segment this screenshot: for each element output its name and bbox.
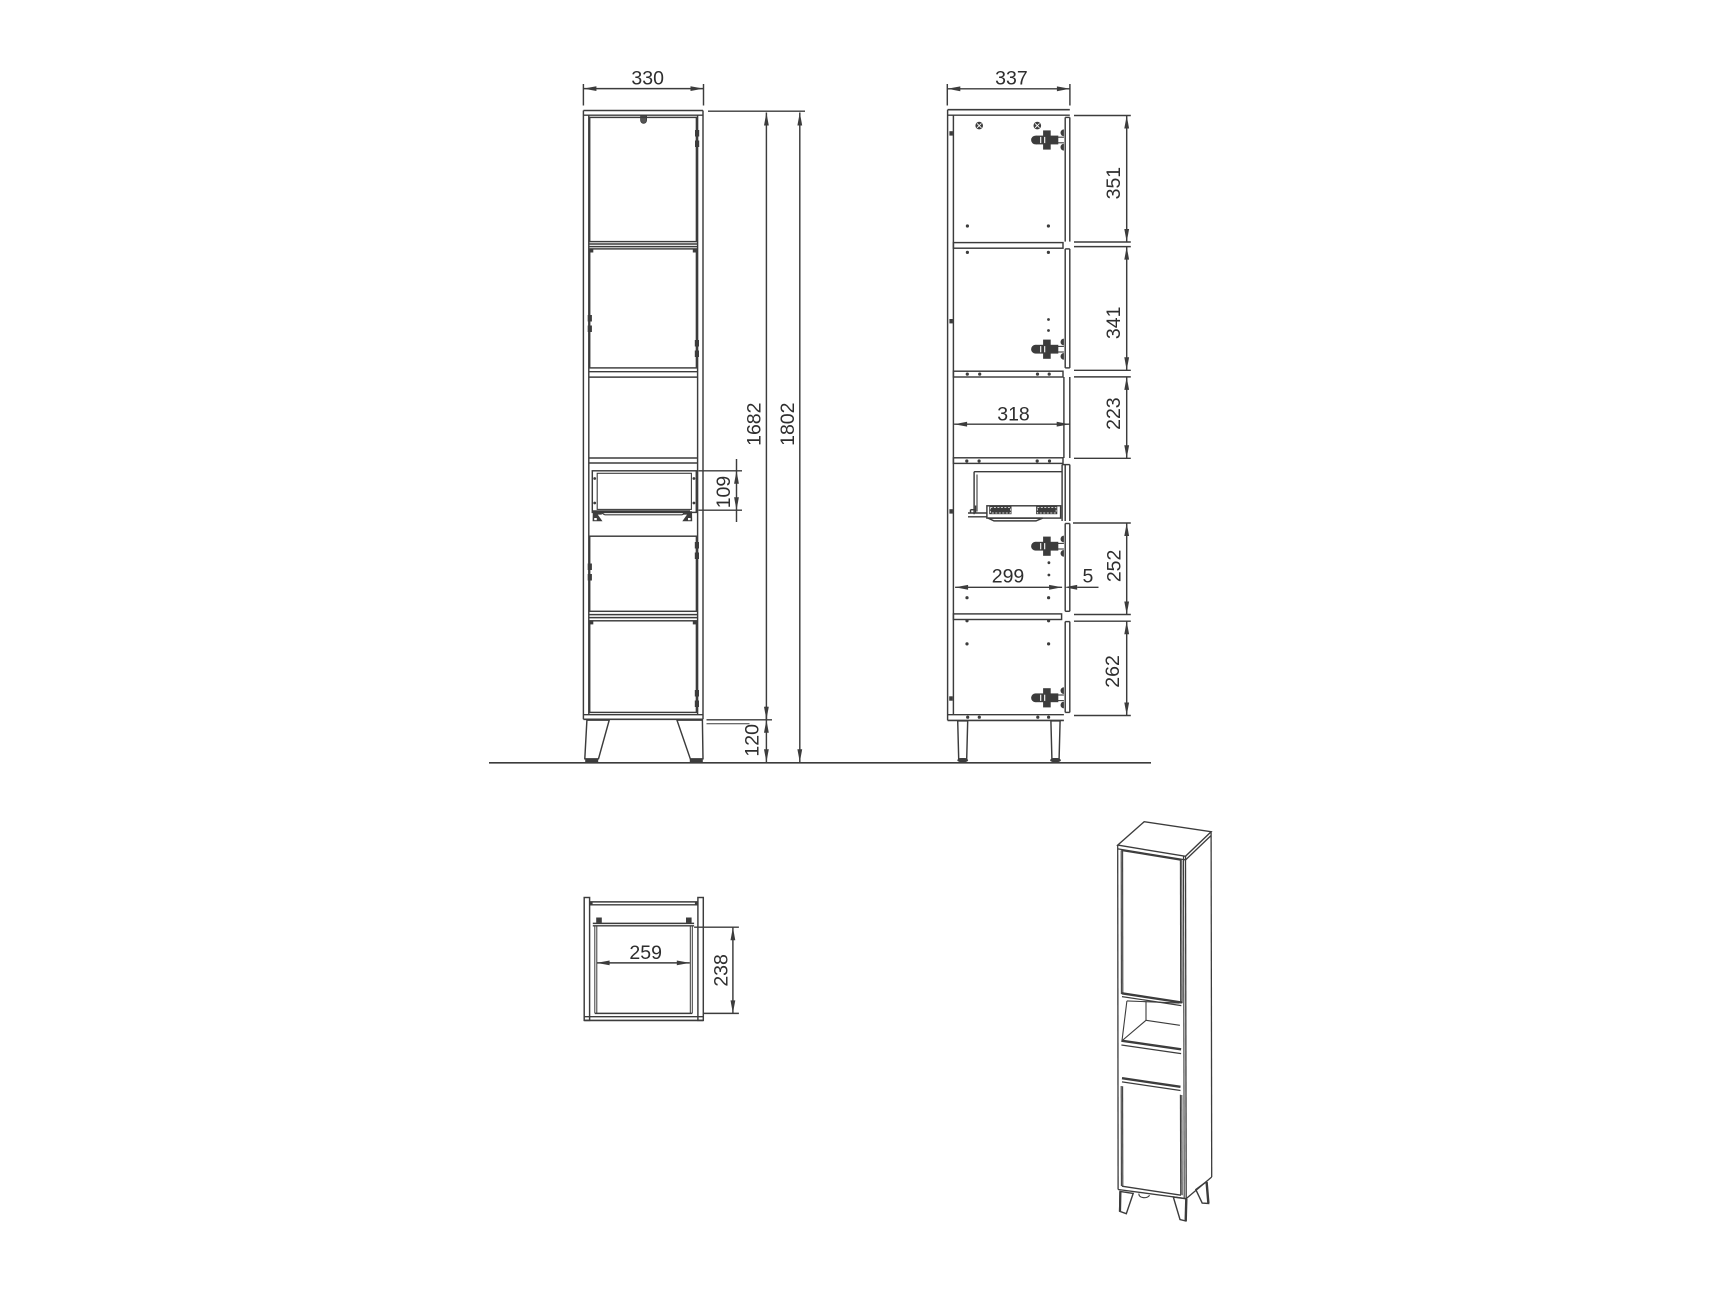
- svg-text:259: 259: [629, 942, 662, 964]
- svg-text:120: 120: [742, 724, 764, 757]
- svg-text:341: 341: [1103, 307, 1125, 340]
- svg-text:223: 223: [1103, 397, 1125, 430]
- svg-text:5: 5: [1082, 566, 1093, 588]
- svg-text:109: 109: [713, 476, 735, 509]
- svg-text:318: 318: [997, 404, 1030, 426]
- svg-text:1682: 1682: [743, 403, 765, 446]
- svg-text:1802: 1802: [777, 403, 799, 446]
- svg-text:238: 238: [711, 954, 733, 987]
- svg-text:351: 351: [1103, 167, 1125, 200]
- svg-text:337: 337: [995, 68, 1028, 90]
- svg-text:252: 252: [1103, 550, 1125, 583]
- svg-text:299: 299: [992, 565, 1025, 587]
- svg-text:330: 330: [631, 68, 664, 90]
- svg-text:262: 262: [1102, 655, 1124, 688]
